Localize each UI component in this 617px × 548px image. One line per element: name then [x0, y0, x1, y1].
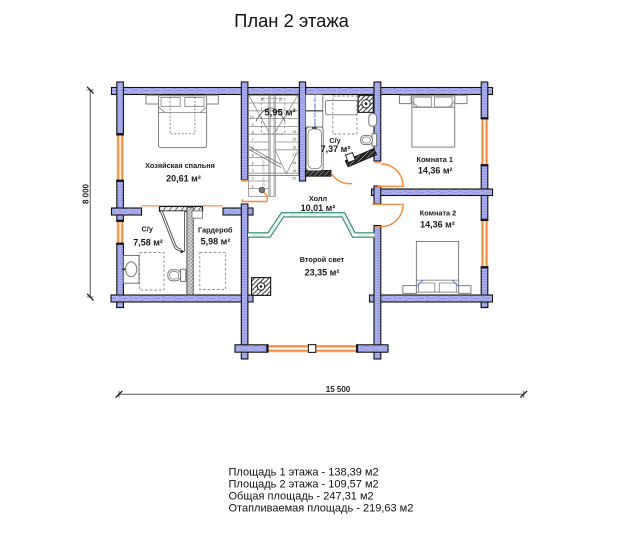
svg-text:7,58 м²: 7,58 м² — [133, 238, 163, 248]
svg-text:16: 16 — [292, 145, 296, 149]
svg-text:Отапливаемая площадь - 219,63: Отапливаемая площадь - 219,63 м2 — [229, 502, 414, 514]
svg-text:13: 13 — [278, 97, 282, 101]
svg-text:Площадь 2 этажа - 109,57 м2: Площадь 2 этажа - 109,57 м2 — [229, 478, 379, 490]
svg-text:С/у: С/у — [142, 225, 154, 234]
svg-text:стир.маш: стир.маш — [313, 95, 317, 112]
svg-text:9: 9 — [252, 123, 254, 127]
svg-text:19: 19 — [292, 169, 296, 173]
svg-text:8: 8 — [252, 131, 254, 135]
svg-text:7,37 м²: 7,37 м² — [321, 144, 351, 154]
svg-text:5,95 м²: 5,95 м² — [264, 107, 295, 118]
svg-text:8 000: 8 000 — [82, 183, 91, 204]
svg-text:14: 14 — [292, 130, 296, 134]
svg-text:Хозяйская спальня: Хозяйская спальня — [145, 161, 215, 170]
svg-text:Площадь 1 этажа - 138,39 м2: Площадь 1 этажа - 138,39 м2 — [229, 466, 379, 478]
svg-text:20,61 м²: 20,61 м² — [166, 173, 201, 183]
svg-text:Общая площадь - 247,31 м2: Общая площадь - 247,31 м2 — [229, 490, 374, 502]
svg-text:6: 6 — [252, 146, 254, 150]
svg-text:15 500: 15 500 — [326, 385, 351, 394]
svg-text:5: 5 — [252, 154, 254, 158]
svg-text:2: 2 — [252, 177, 254, 181]
svg-text:Холл: Холл — [309, 194, 328, 203]
svg-text:23,35 м²: 23,35 м² — [305, 268, 340, 278]
svg-text:20: 20 — [292, 177, 296, 181]
svg-text:Второй свет: Второй свет — [300, 255, 345, 264]
svg-text:7: 7 — [252, 138, 254, 142]
svg-text:14,36 м²: 14,36 м² — [420, 220, 455, 230]
svg-text:15: 15 — [292, 138, 296, 142]
svg-text:1: 1 — [252, 184, 254, 188]
svg-text:10: 10 — [250, 115, 254, 119]
svg-text:10,01 м²: 10,01 м² — [301, 203, 336, 213]
svg-text:суш.маш: суш.маш — [313, 111, 317, 127]
svg-text:Комната 1: Комната 1 — [416, 155, 452, 164]
svg-text:3: 3 — [252, 169, 254, 173]
svg-text:14,36 м²: 14,36 м² — [418, 166, 453, 176]
svg-text:12: 12 — [261, 97, 265, 101]
svg-text:18: 18 — [292, 161, 296, 165]
svg-text:Гардероб: Гардероб — [198, 226, 233, 235]
svg-text:Подъем 19х167х300: Подъем 19х167х300 — [262, 158, 266, 190]
svg-text:Комната 2: Комната 2 — [420, 209, 456, 218]
svg-text:5,98 м²: 5,98 м² — [201, 237, 231, 247]
svg-text:4: 4 — [252, 161, 254, 165]
svg-text:17: 17 — [292, 153, 296, 157]
svg-text:План 2 этажа: План 2 этажа — [234, 10, 350, 31]
